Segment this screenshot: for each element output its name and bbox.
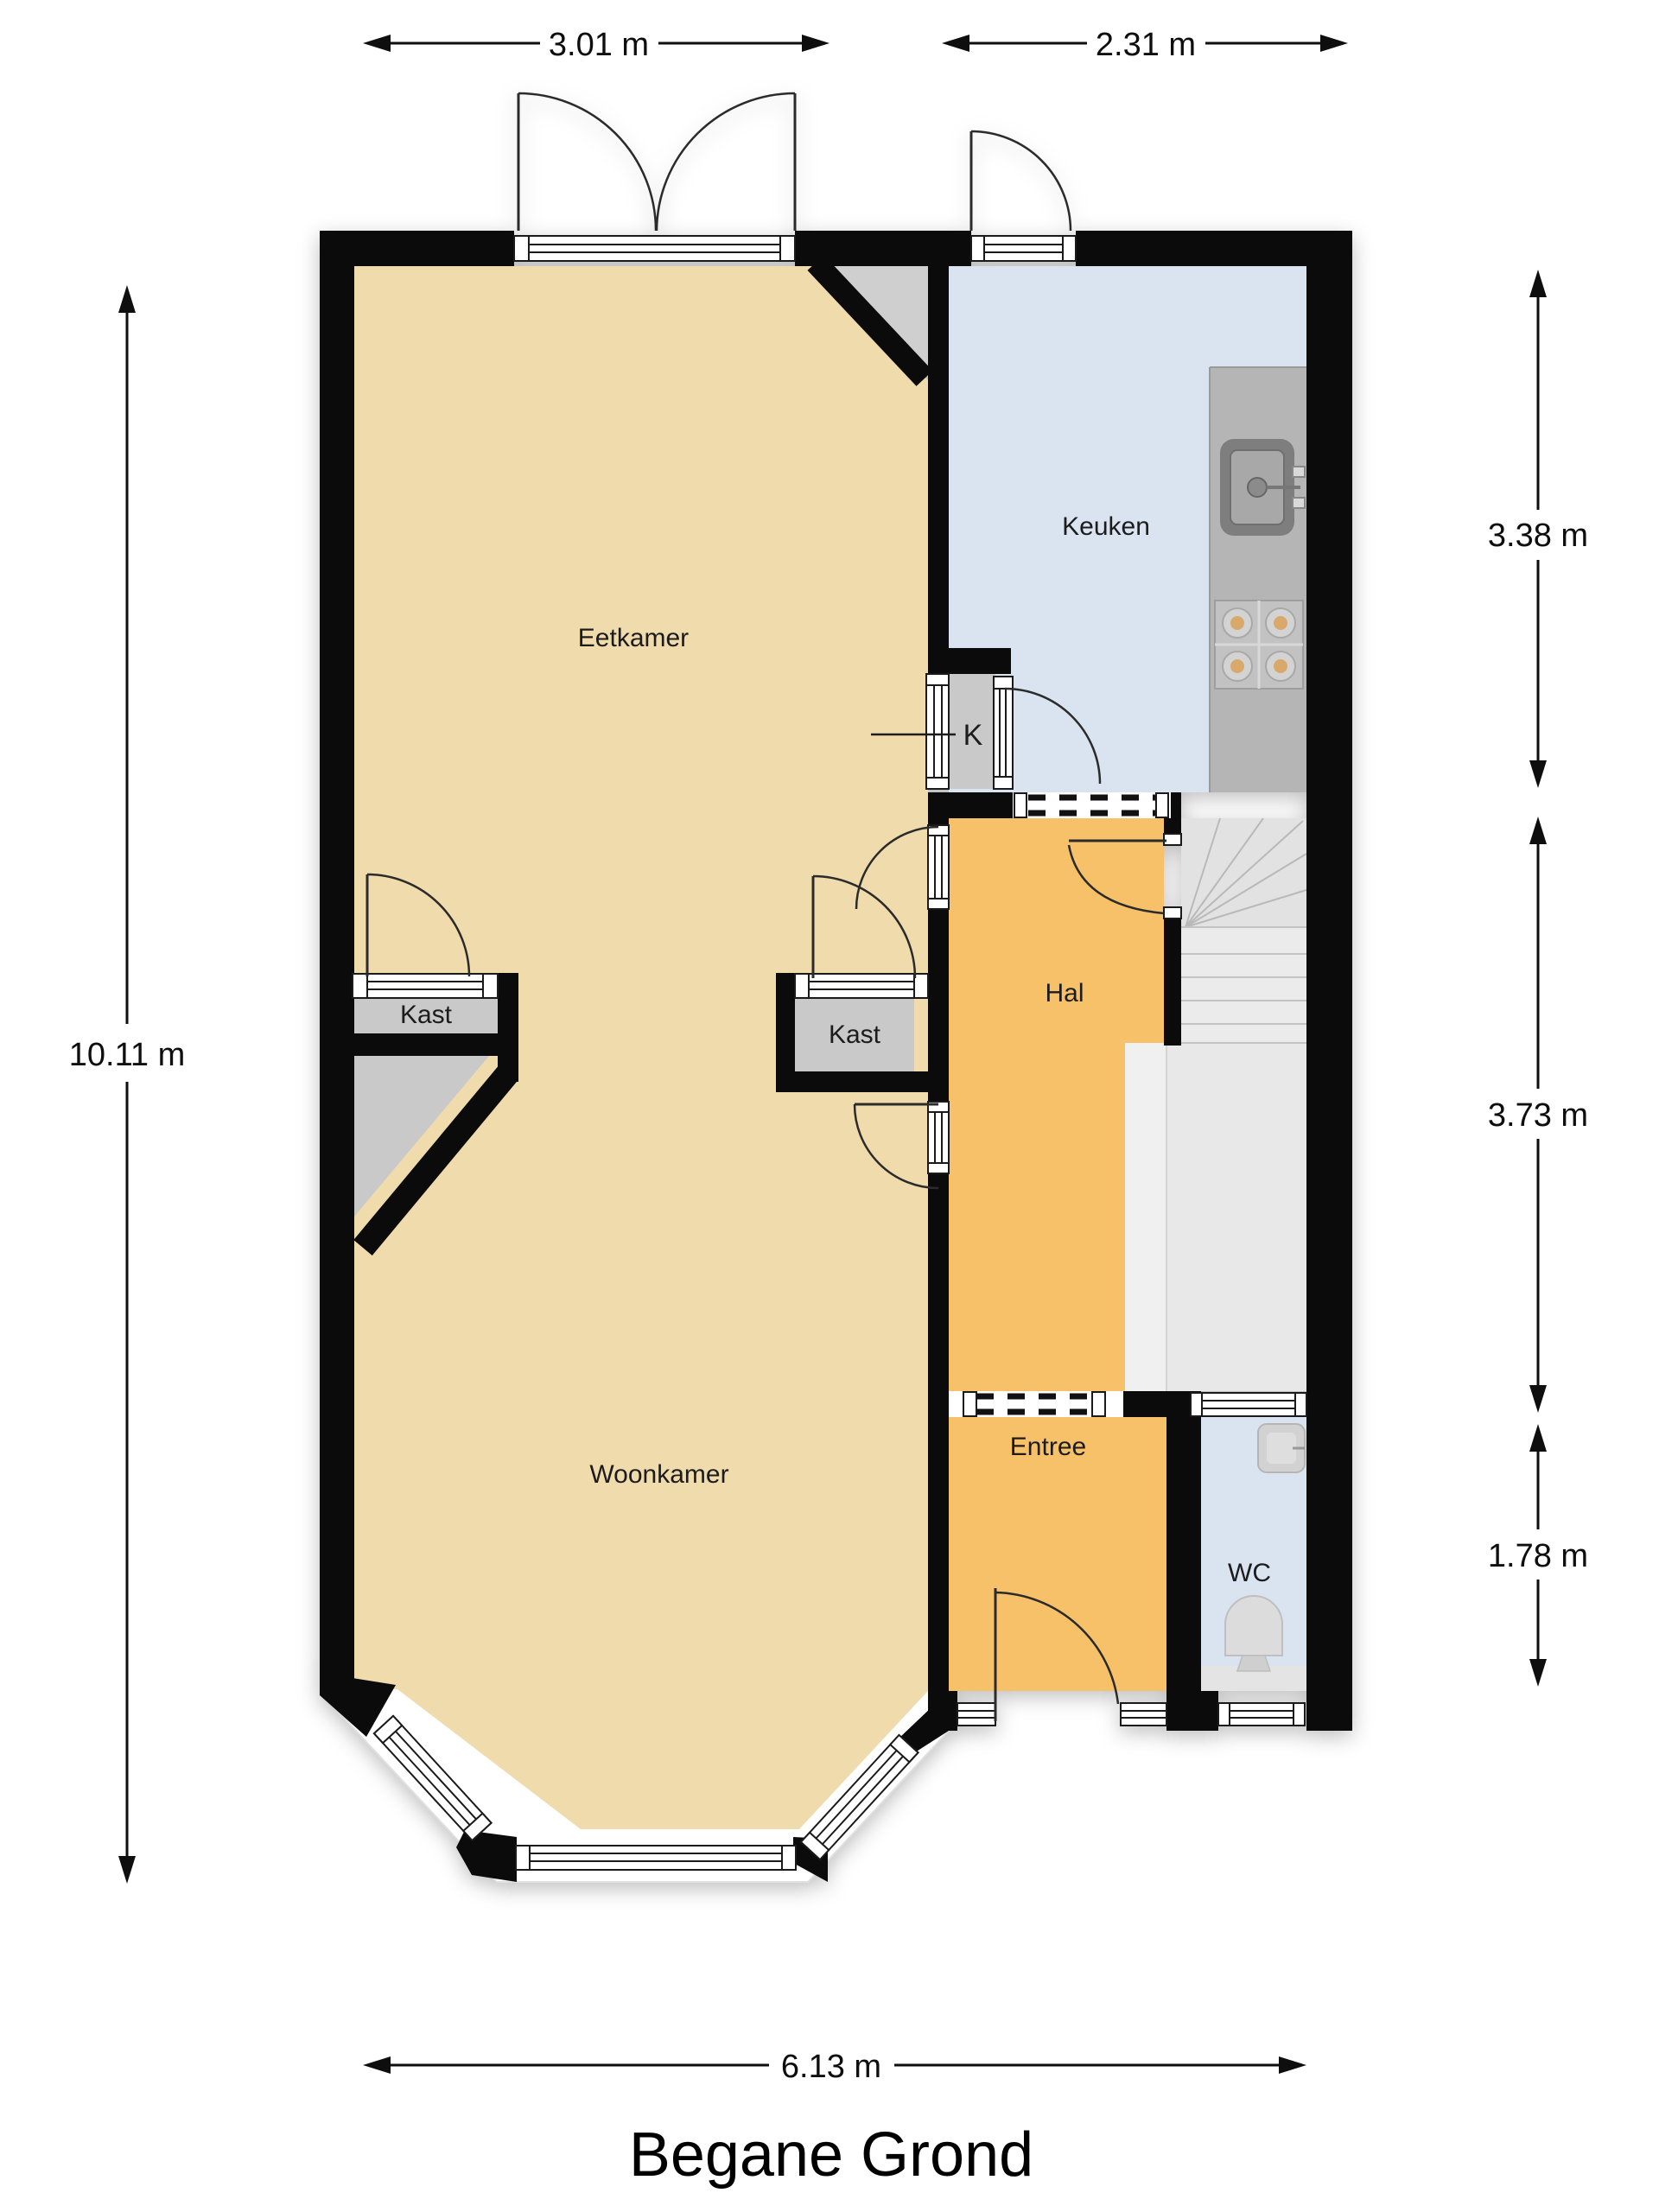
label-hal: Hal <box>1045 979 1084 1007</box>
label-k-closet: K <box>963 719 983 752</box>
dimension-right-top: 3.38 m <box>1488 270 1588 788</box>
svg-text:6.13 m: 6.13 m <box>781 2049 881 2085</box>
label-kast-mid: Kast <box>829 1020 881 1049</box>
passage-hal-entree <box>949 1391 1123 1417</box>
closet-front-left <box>353 974 498 998</box>
dimension-right-bottom: 1.78 m <box>1488 1424 1588 1687</box>
svg-text:1.78 m: 1.78 m <box>1488 1538 1588 1574</box>
window-k-closet <box>926 674 949 789</box>
passage-keuken-hal <box>1013 792 1171 818</box>
building: Eetkamer Keuken Kast Kast K Hal Woonkame… <box>320 93 1352 1882</box>
door-french-left <box>518 93 656 231</box>
window-entree-left <box>957 1703 995 1726</box>
dimension-right-mid: 3.73 m <box>1488 817 1588 1413</box>
label-kast-left: Kast <box>400 1001 453 1029</box>
door-panel-eetkamer-hal <box>928 825 949 909</box>
hand-basin-icon <box>1258 1424 1305 1472</box>
door-french-right <box>657 93 795 231</box>
kitchen-counter <box>1210 367 1306 792</box>
bay-window-front <box>516 1846 796 1870</box>
door-frame <box>1164 907 1181 918</box>
label-woonkamer: Woonkamer <box>589 1460 728 1489</box>
kitchen-sink-icon <box>1220 439 1305 536</box>
window-kitchen-door <box>971 236 1076 261</box>
window-wc <box>1218 1703 1305 1726</box>
window-stairs-wc <box>1191 1393 1306 1416</box>
svg-text:3.73 m: 3.73 m <box>1488 1097 1588 1134</box>
dimension-top-right: 2.31 m <box>942 27 1348 63</box>
stove-burners-icon <box>1215 601 1303 689</box>
door-panel-woonkamer-hal <box>928 1102 949 1173</box>
closet-front-mid <box>795 974 928 998</box>
svg-text:3.38 m: 3.38 m <box>1488 518 1588 554</box>
svg-text:3.01 m: 3.01 m <box>549 27 649 63</box>
label-wc: WC <box>1228 1559 1271 1587</box>
window-french-doors <box>514 236 795 261</box>
floorplan-canvas: Eetkamer Keuken Kast Kast K Hal Woonkame… <box>0 0 1659 2212</box>
dimension-left: 10.11 m <box>69 285 185 1884</box>
label-keuken: Keuken <box>1062 512 1150 541</box>
window-entree-right <box>1121 1703 1166 1726</box>
door-panel-k-closet <box>994 677 1013 789</box>
svg-text:2.31 m: 2.31 m <box>1096 27 1196 63</box>
svg-text:10.11 m: 10.11 m <box>69 1037 185 1073</box>
label-eetkamer: Eetkamer <box>578 624 689 652</box>
dimension-top-left: 3.01 m <box>363 27 829 63</box>
page-title: Begane Grond <box>629 2120 1033 2190</box>
door-keuken-top <box>971 131 1071 231</box>
label-entree: Entree <box>1010 1433 1086 1461</box>
dimension-bottom: 6.13 m <box>363 2049 1306 2085</box>
floorplan-page: Eetkamer Keuken Kast Kast K Hal Woonkame… <box>0 0 1659 2212</box>
